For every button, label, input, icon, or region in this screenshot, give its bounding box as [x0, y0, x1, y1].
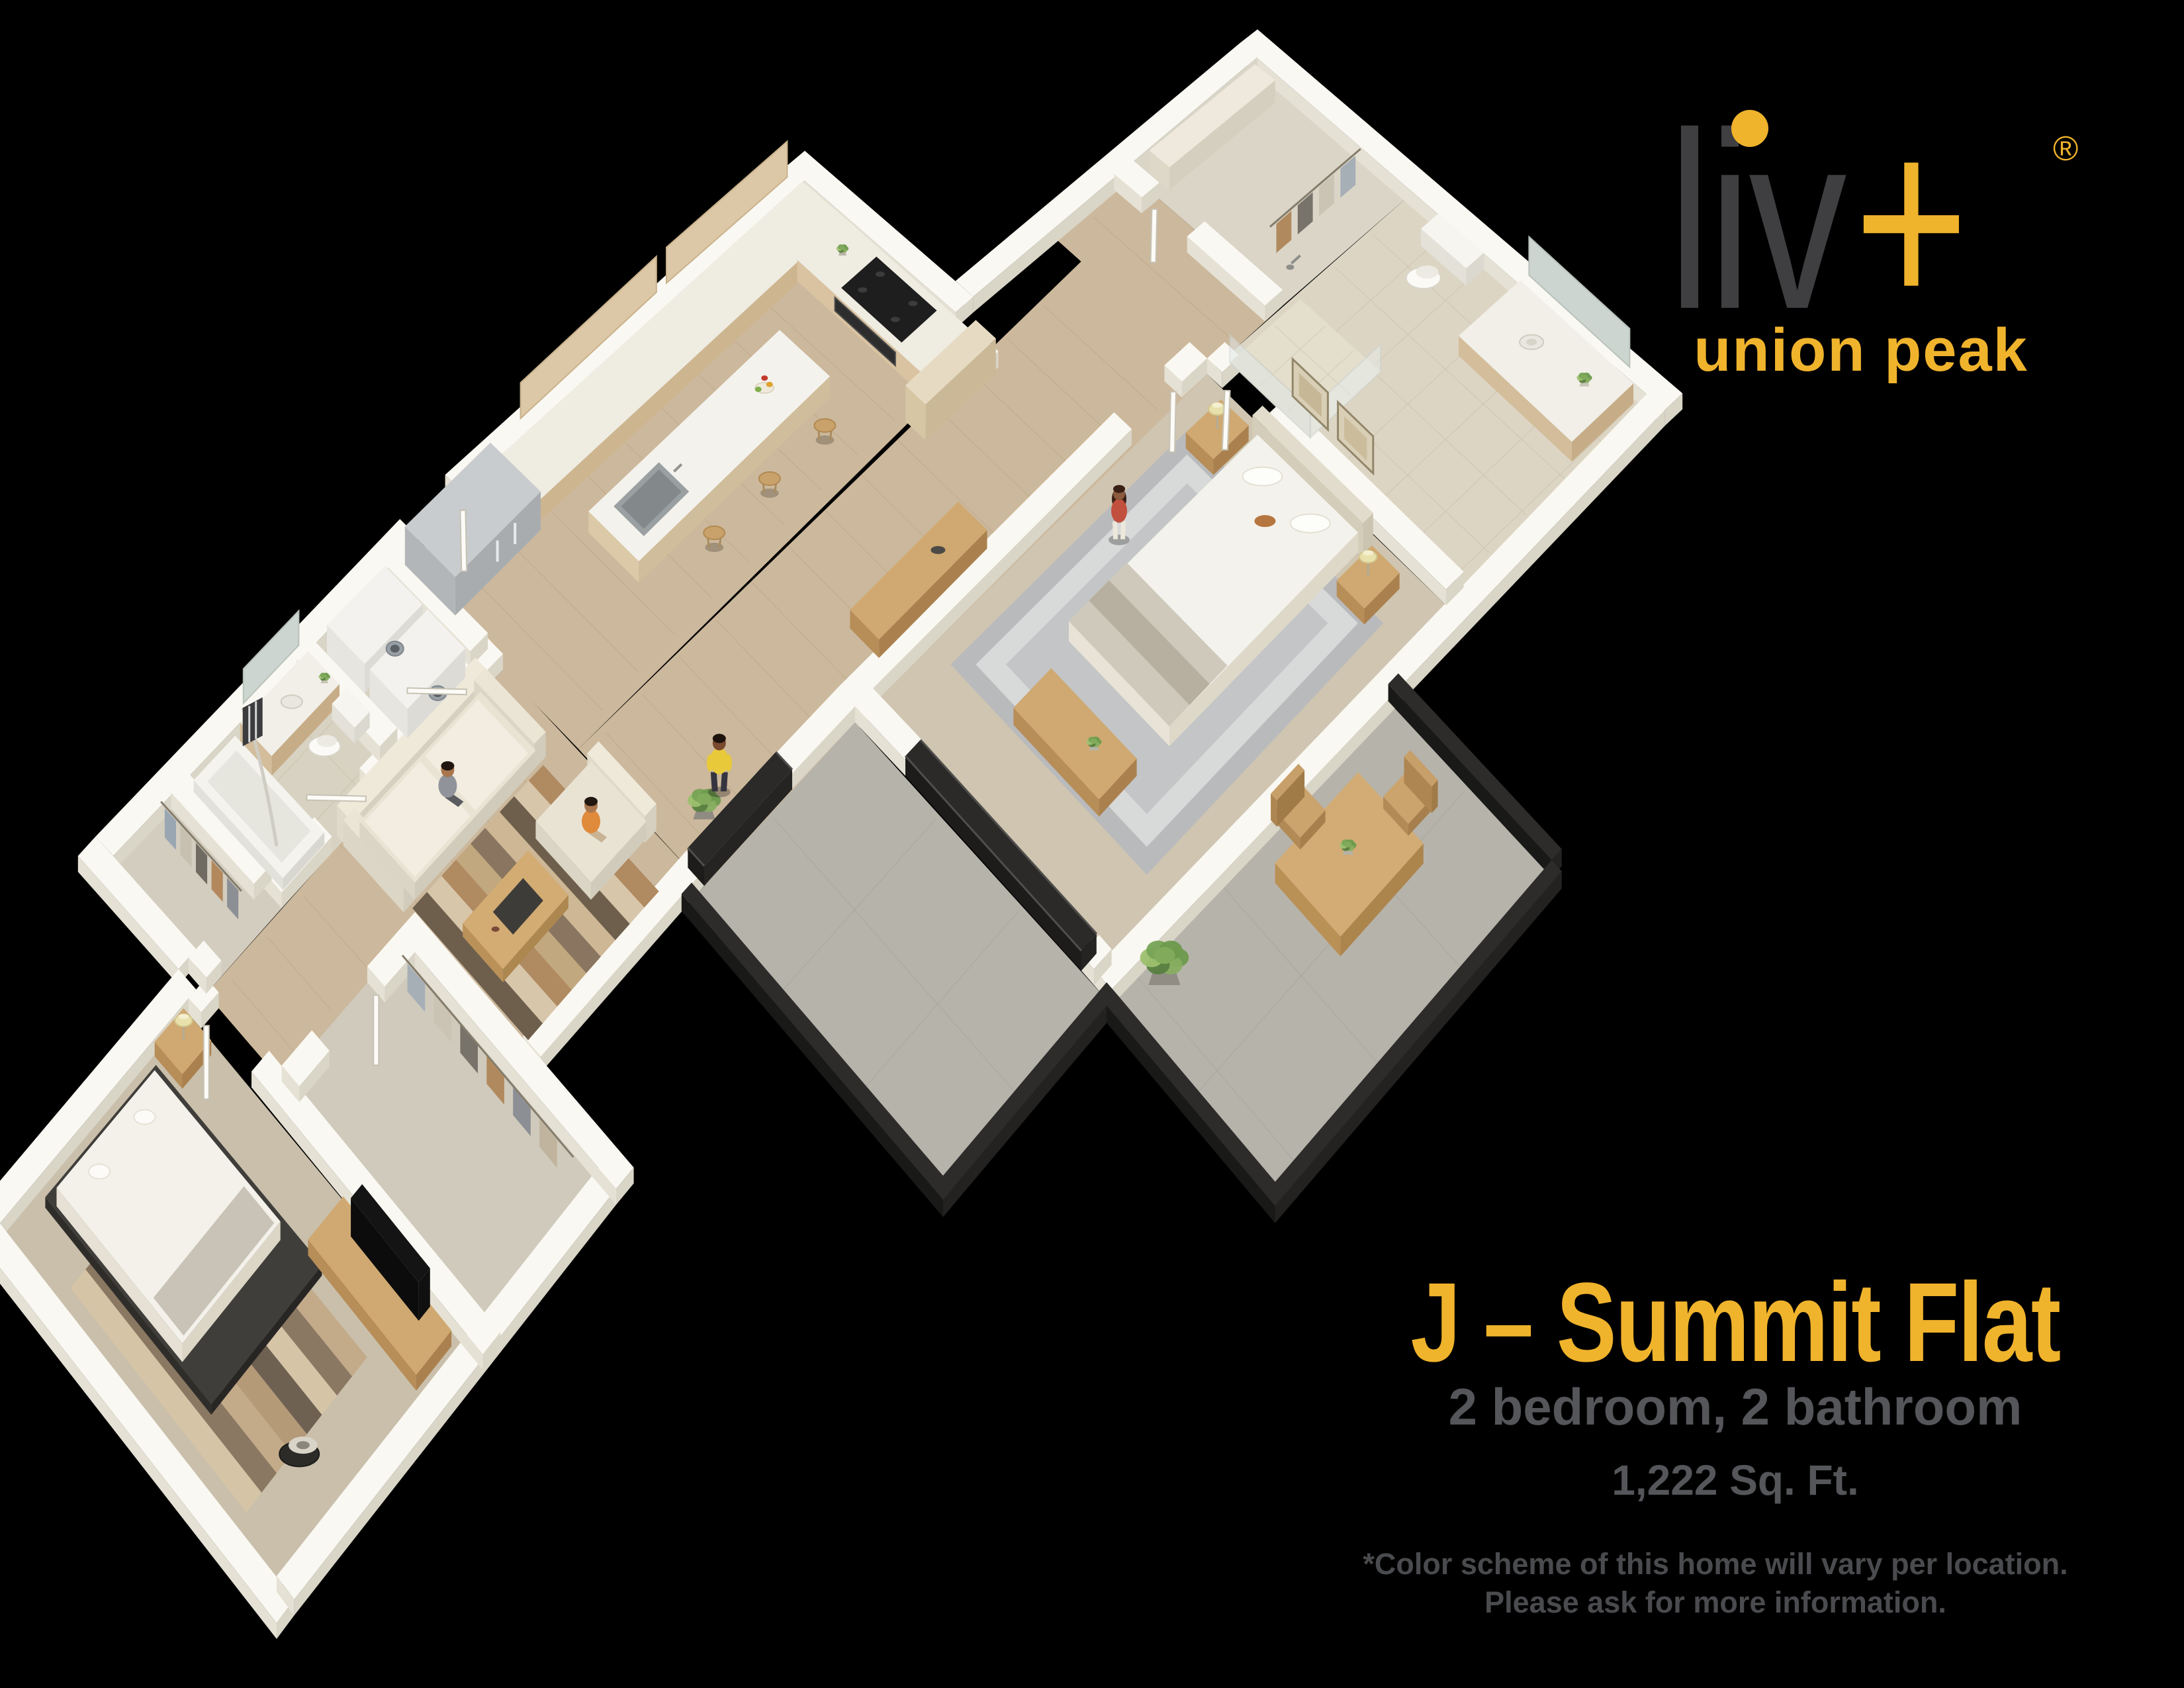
logo-subbrand: union peak [1694, 316, 2028, 384]
plan-disclaimer-line1: *Color scheme of this home will vary per… [1363, 1547, 2068, 1581]
plan-subtitle: 2 bedroom, 2 bathroom [1449, 1378, 2023, 1436]
brand-logo: liv+ ® union peak [1668, 81, 2078, 384]
logo-registered-mark: ® [2053, 130, 2078, 168]
plan-area: 1,222 Sq. Ft. [1612, 1456, 1858, 1504]
flyer-canvas: liv+ ® union peak J – Summit Flat 2 bedr… [0, 0, 2184, 1688]
floorplan-flyer: { "logo": { "brand": "liv", "plus": "+",… [0, 0, 2184, 1688]
logo-i-dot [1731, 110, 1768, 147]
caption-block: J – Summit Flat 2 bedroom, 2 bathroom 1,… [1363, 1260, 2068, 1619]
plan-title: J – Summit Flat [1410, 1260, 2060, 1385]
floor-plan-3d-render [0, 29, 1682, 1639]
plan-disclaimer-line2: Please ask for more information. [1484, 1585, 1946, 1619]
